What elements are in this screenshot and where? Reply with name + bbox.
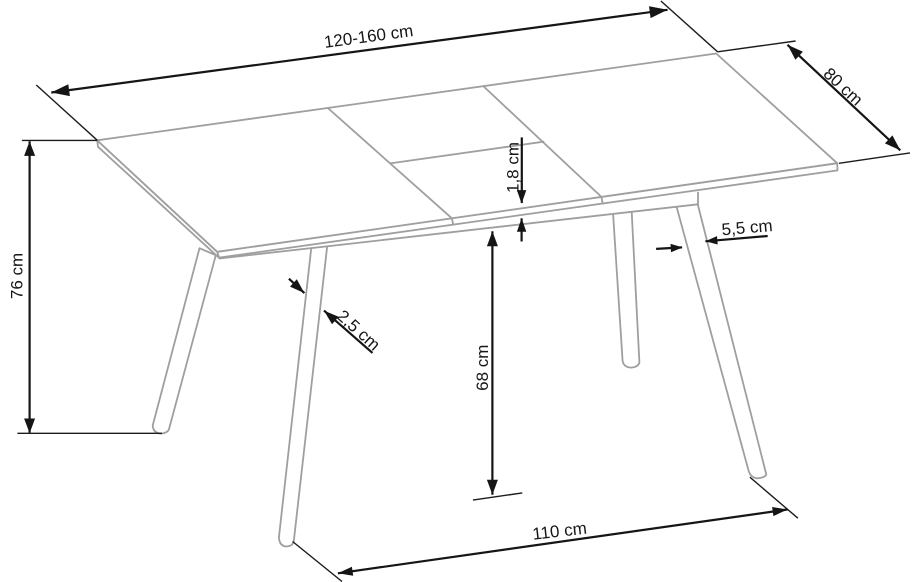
svg-text:1,8 cm: 1,8 cm xyxy=(504,142,523,193)
svg-text:2,5 cm: 2,5 cm xyxy=(333,306,384,354)
svg-text:80 cm: 80 cm xyxy=(820,64,867,109)
svg-text:120-160 cm: 120-160 cm xyxy=(323,21,415,52)
svg-text:76 cm: 76 cm xyxy=(8,253,27,299)
svg-text:68 cm: 68 cm xyxy=(473,345,492,391)
